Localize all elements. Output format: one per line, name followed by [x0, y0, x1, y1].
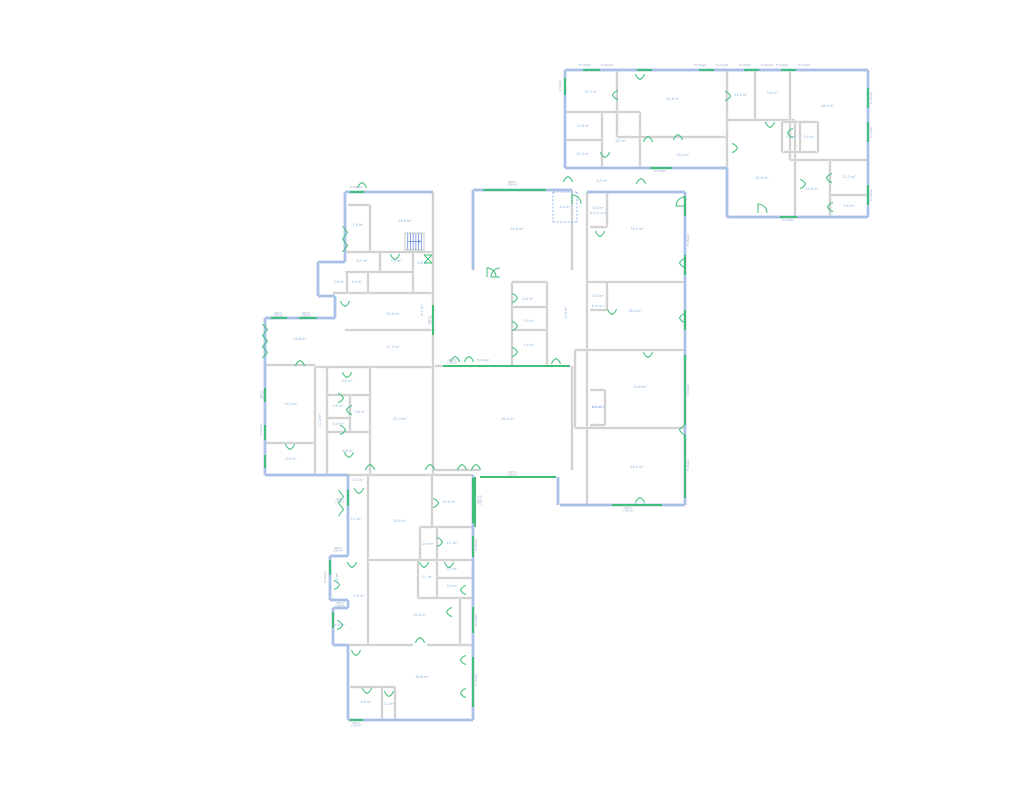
dimension-tag-line: 2100 HD	[335, 501, 345, 504]
dimension-tag-line: For Height	[654, 170, 666, 173]
dimension-tag-line: For Height	[716, 64, 728, 67]
room-label: 4.4 m²	[523, 343, 535, 347]
room-label: 7.8 m²	[352, 223, 364, 227]
dimension-tag: 400 FL2100 HD	[333, 547, 343, 553]
room-label: 7.4 m²	[390, 259, 402, 263]
room-label: 5.4 m²	[803, 135, 815, 139]
room-label: 4.9 m²	[334, 623, 346, 627]
dimension-tag: For Height	[761, 64, 773, 67]
room-label: 14.2 m²	[734, 93, 748, 97]
room-label: 19.2 m²	[284, 402, 298, 406]
dimension-tag: For Height	[687, 234, 690, 246]
room-label: 31.2 m²	[584, 90, 598, 94]
door-swing-icon	[636, 74, 645, 80]
room-label: 16.4 m²	[676, 153, 690, 157]
room-label: 86.4 m²	[501, 417, 515, 421]
door-arc-icon	[758, 204, 767, 213]
door-icon	[447, 608, 453, 617]
door-icon	[416, 638, 425, 644]
dimension-tag-line: 2100 HD	[507, 184, 517, 187]
room-label: 16.8 m²	[293, 337, 307, 341]
dimension-tag-line: For Height	[579, 64, 591, 67]
room-label: 4.8 m²	[417, 261, 429, 265]
door-swing-icon	[416, 638, 425, 644]
room-label: 38.4 m²	[821, 104, 835, 108]
dimension-tag-line: 2100 HD	[301, 315, 311, 318]
room-label: 12.6 m²	[564, 306, 568, 320]
room-label: 24.8 m²	[393, 519, 407, 523]
dashed-details	[553, 192, 606, 407]
zigzag-windows	[263, 226, 348, 516]
dimension-tag-line: For Height	[870, 92, 873, 104]
dimension-tag: For Height	[782, 219, 794, 222]
dimension-tag: 400 FL2100 HD	[335, 498, 345, 504]
stair-symbol	[405, 233, 424, 250]
room-label: 2.2 m²	[383, 702, 395, 706]
dimension-tag: 400 FL2100 HD	[447, 359, 457, 365]
door-icon	[461, 689, 467, 698]
dimension-tag-line: For Height	[559, 80, 562, 92]
room-label: 42.3 m²	[755, 176, 769, 180]
room-label: 2.8 m²	[592, 206, 604, 210]
room-label: 34.2 m²	[630, 227, 644, 231]
room-label: 45.6 m²	[666, 97, 680, 101]
door-icon	[636, 498, 645, 504]
dimension-tag-line: 2100 HD	[507, 474, 517, 477]
room-label: 26.2 m²	[630, 465, 644, 469]
door-swing-icon	[343, 372, 352, 378]
room-label: 10.6 m²	[442, 500, 456, 504]
door-swing-icon	[341, 301, 350, 307]
dimension-tag: 400 FL2100 HD	[273, 312, 283, 318]
room-label: 3.2 m²	[332, 422, 344, 426]
dimension-tag: For Height	[601, 64, 613, 67]
room-label: 4.4 m²	[335, 572, 339, 584]
room-label: 3.3 m²	[446, 567, 458, 571]
door-swing-icon	[461, 689, 467, 698]
door-icon	[596, 231, 605, 237]
dimension-tag-line: For Height	[870, 189, 873, 201]
dimension-tag: For Height	[475, 614, 478, 626]
room-label: 4.2 m²	[351, 280, 363, 284]
dimension-tag-line: For Height	[761, 64, 773, 67]
room-label: 5.6 m²	[354, 410, 366, 414]
dimension-tag: For Height	[260, 424, 263, 436]
floor-plan-svg: 31.2 m²12.8 m²11.4 m²45.6 m²8.2 m²16.4 m…	[0, 0, 1024, 786]
dimension-tag-line: For Height	[350, 186, 362, 189]
room-label: 2.6 m²	[592, 294, 604, 298]
dimension-tag: For Height	[350, 186, 362, 189]
dimension-tag-line: For Height	[687, 234, 690, 246]
room-label: 28.4 m²	[628, 309, 642, 313]
door-icon	[286, 444, 295, 450]
door-icon	[564, 177, 573, 183]
door-swing-icon	[564, 177, 573, 183]
dimension-tag: For Height	[739, 64, 751, 67]
room-label: 28.6 m²	[398, 219, 412, 223]
door-swing-icon	[385, 691, 394, 697]
room-label: 8.8 m²	[342, 449, 354, 453]
dimension-tag-line: 2100 HD	[263, 390, 266, 400]
door-swing-icon	[766, 122, 775, 128]
room-label: 2.4 m²	[591, 405, 603, 409]
door-swing-icon	[636, 498, 645, 504]
dimension-tag-line: For Height	[870, 126, 873, 138]
room-label: 11.4 m²	[576, 152, 590, 156]
dimension-tag-line: For Height	[475, 539, 478, 551]
dimension-tag-line: 2100 HD	[335, 605, 345, 608]
door-icon	[343, 372, 352, 378]
dimension-tag: 400 FL2100 HD	[507, 471, 517, 477]
room-label: 12.8 m²	[576, 124, 590, 128]
dimension-tag: For Height	[798, 64, 810, 67]
dimension-tag: For Height	[716, 64, 728, 67]
dimension-tag: For Height	[694, 64, 706, 67]
dimension-tag-line: For Height	[260, 424, 263, 436]
door-swing-icon	[552, 359, 561, 365]
door-swing-icon	[608, 309, 617, 315]
room-label: 5.0 m²	[596, 179, 608, 183]
dimension-tag-line: 2100 HD	[623, 510, 633, 513]
door-swing-icon	[352, 650, 361, 656]
room-label: 24.6 m²	[633, 385, 647, 389]
door-swing-icon	[637, 179, 646, 185]
door-icon	[355, 488, 364, 494]
room-label: 4.6 m²	[522, 297, 534, 301]
door-swing-icon	[465, 357, 474, 363]
door-swing-icon	[355, 488, 364, 494]
room-label: 10.8 m²	[805, 187, 819, 191]
door-icon	[461, 586, 467, 595]
door-swing-icon	[363, 688, 372, 694]
dimension-tag: For Height	[870, 189, 873, 201]
dimension-tag-line: For Height	[694, 64, 706, 67]
dimension-tag-line: 2100 HD	[447, 362, 457, 365]
dimension-tag: 400 FL2100 HD	[477, 495, 483, 505]
room-label: 3.8 m²	[332, 404, 344, 408]
stair-arrow-icon	[418, 240, 421, 244]
dimension-tag: 400 FL2100 HD	[351, 722, 361, 728]
door-icon	[552, 359, 561, 365]
dimension-tag: For Height	[324, 571, 327, 583]
door-swing-icon	[286, 444, 295, 450]
room-label: 30.8 m²	[415, 675, 429, 679]
door-icon	[433, 499, 439, 508]
dimension-tag: For Height	[579, 64, 591, 67]
door-swing-icon	[461, 656, 467, 665]
dimension-tag: 400 FL2100 HD	[260, 390, 266, 400]
room-label: 3.1 m²	[421, 575, 433, 579]
dimension-tag: For Height	[654, 170, 666, 173]
dimension-tag: For Height	[870, 126, 873, 138]
door-icon	[636, 74, 645, 80]
dimension-tag-line: 2100 HD	[351, 725, 361, 728]
dimension-tag-line: For Height	[475, 674, 478, 686]
door-icon	[461, 656, 467, 665]
door-icon	[637, 179, 646, 185]
room-label: 7.6 m²	[353, 594, 365, 598]
floor-plan-canvas: 31.2 m²12.8 m²11.4 m²45.6 m²8.2 m²16.4 m…	[0, 0, 1024, 786]
door-swing-icon	[348, 562, 357, 568]
dimension-tag: For Height	[687, 384, 690, 396]
room-label: 18.6 m²	[386, 312, 400, 316]
door-icon	[420, 562, 429, 568]
dimension-tag: 400 FL2100 HD	[428, 315, 434, 325]
door-swing-icon	[461, 586, 467, 595]
room-label: 8.2 m²	[615, 139, 627, 143]
door-icon	[385, 691, 394, 697]
door-icon	[644, 352, 653, 358]
room-label: 2.9 m²	[422, 542, 434, 546]
room-label: 6.4 m²	[559, 205, 571, 209]
dimension-tag: 400 FL2100 HD	[301, 312, 311, 318]
dimension-tag-line: For Height	[601, 64, 613, 67]
dimension-tag: For Height	[477, 359, 489, 362]
room-label: 9.4 m²	[341, 379, 353, 383]
door-swing-icon	[732, 144, 738, 153]
room-label: 3.5 m²	[446, 584, 458, 588]
dimension-tag: For Height	[687, 459, 690, 471]
door-swing-icon	[433, 499, 439, 508]
room-label: 22.6 m²	[413, 613, 427, 617]
room-label: 17.2 m²	[386, 345, 400, 349]
door-swing-icon	[596, 231, 605, 237]
dimension-tag-line: 2100 HD	[333, 550, 343, 553]
room-label: 6.2 m²	[356, 259, 368, 263]
door-icon	[732, 144, 738, 153]
room-label: 21.4 m²	[393, 417, 407, 421]
door-swing-icon	[644, 352, 653, 358]
dimension-tag: For Height	[870, 92, 873, 104]
door-icon	[363, 688, 372, 694]
dimension-tag-line: For Height	[324, 571, 327, 583]
door-icon	[352, 650, 361, 656]
dimension-tag-line: For Height	[798, 64, 810, 67]
door-icon	[341, 301, 350, 307]
dimension-tag-line: For Height	[687, 459, 690, 471]
door-icon	[348, 562, 357, 568]
dimension-tag-line: For Height	[776, 64, 788, 67]
room-label: 6.8 m²	[360, 700, 372, 704]
door-icon	[465, 357, 474, 363]
dimension-tag-line: For Height	[475, 614, 478, 626]
dimension-tag-line: For Height	[739, 64, 751, 67]
dimension-tag-line: 2100 HD	[273, 315, 283, 318]
room-label: 9.6 m²	[766, 91, 778, 95]
room-label: 4.1 m²	[446, 541, 458, 545]
room-label: 3.6 m²	[333, 280, 345, 284]
dimension-tag: 400 FL2100 HD	[507, 181, 517, 187]
room-label: 3.9 m²	[523, 319, 535, 323]
door-icon	[608, 309, 617, 315]
dimension-tag-line: For Height	[687, 384, 690, 396]
room-label: 52.8 m²	[510, 227, 524, 231]
room-label: 6.1 m²	[420, 304, 424, 316]
door-swing-icon	[420, 562, 429, 568]
door-icon	[766, 122, 775, 128]
dimension-tag: 400 FL2100 HD	[623, 507, 633, 513]
dimension-tag-line: For Height	[477, 359, 489, 362]
dimension-tag: For Height	[475, 539, 478, 551]
room-label: 10.4 m²	[318, 413, 322, 427]
room-label: 5.2 m²	[785, 135, 797, 139]
dimension-tag-line: 2100 HD	[480, 495, 483, 505]
dimension-tag: 400 FL2100 HD	[335, 602, 345, 608]
dimension-tag: For Height	[559, 80, 562, 92]
dimension-tag-line: For Height	[782, 219, 794, 222]
dimension-tag: For Height	[776, 64, 788, 67]
room-label: 9.8 m²	[843, 204, 855, 208]
dimension-tag-line: 2100 HD	[431, 315, 434, 325]
room-label: 5.2 m²	[350, 517, 362, 521]
door-swing-icon	[447, 608, 453, 617]
door-icon	[758, 204, 767, 213]
room-label: 12.2 m²	[842, 175, 856, 179]
dimension-tag: For Height	[475, 674, 478, 686]
room-label: 8.6 m²	[285, 457, 297, 461]
room-label: 3.4 m²	[352, 478, 364, 482]
